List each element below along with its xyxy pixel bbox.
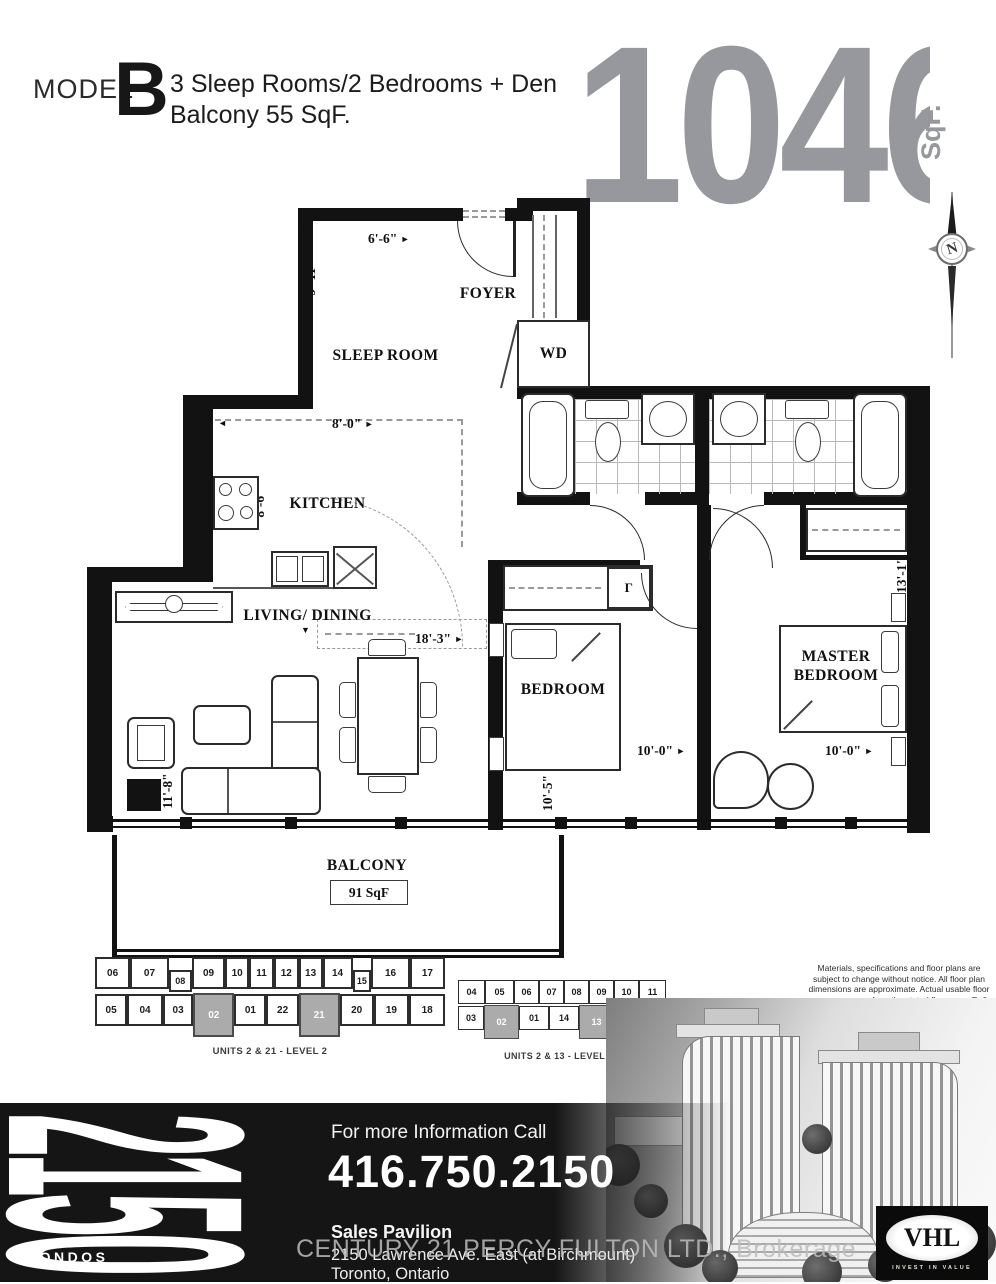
balcony-area-box: 91 SqF [330,880,408,905]
keyplan-unit-06: 06 [514,980,539,1004]
keyplan-row: 060708091011121314151617 [95,957,445,992]
keyplan-unit-02: 02 [193,993,234,1037]
phone-number: 416.750.2150 [328,1146,615,1198]
keyplan-unit-09: 09 [192,957,225,989]
keyplan-unit-05: 05 [95,994,127,1026]
tree [802,1124,832,1154]
window-mullion [845,817,857,829]
floor-plan: BALCONY 91 SqF WD SLEEP ROOM 6'-6" ► 9'-… [85,195,930,970]
keyplan-unit-02: 02 [484,1005,519,1039]
toilet-tank [785,400,829,419]
armchair-seat [137,725,165,761]
keyplan-unit-17: 17 [410,957,445,989]
arrow-right-icon: ► [454,634,463,644]
bathroom-sink [720,401,758,437]
vhl-tagline: INVEST IN VALUE [892,1265,972,1271]
wall [907,386,930,833]
keyplan-unit-07: 07 [130,957,169,989]
balcony-area-value: 91 SqF [349,885,389,901]
keyplan-unit-19: 19 [374,994,410,1026]
sofa [181,767,321,815]
area-number-watermark: 1046 [574,40,930,208]
model-letter: B [114,46,169,133]
keyplan-unit-03: 03 [458,1006,484,1030]
keyplan-unit-14: 14 [549,1006,579,1030]
window-mullion [775,817,787,829]
dim-kitchen-width: 8'-0" ► [332,416,374,432]
window-mullion [180,817,192,829]
closet-door-angled [500,324,518,389]
tv-knob [165,595,183,613]
keyplan-unit-08: 08 [564,980,589,1004]
wall [695,386,709,504]
keyplan-unit-16: 16 [371,957,410,989]
dining-chair [420,727,437,763]
dining-table [357,657,419,775]
arrow-left-icon: ◄ [218,418,227,428]
keyplan-unit-13: 13 [299,957,323,989]
model-description-line2: Balcony 55 SqF. [170,101,351,130]
window-mullion [488,813,503,830]
keyplan-unit-22: 22 [266,994,298,1026]
room-label-sleep-room: SLEEP ROOM [313,347,458,365]
stove-burner [219,483,232,496]
compass-south-blade [948,266,956,326]
dining-chair [368,776,406,793]
bathroom-door-arc [590,505,645,560]
window-mullion [395,817,407,829]
address-line2: Toronto, Ontario [331,1265,449,1284]
window-band [112,819,907,822]
keyplan-unit-08: 08 [169,970,192,992]
sink-basin [276,556,298,582]
room-label-living-dining: LIVING/ DINING [225,607,390,625]
opening-dashed [463,216,505,218]
toilet-bowl [795,422,821,462]
balcony-railing [112,949,564,952]
room-label-bedroom: BEDROOM [503,681,623,699]
keyplan-unit-01: 01 [519,1006,549,1030]
closet-rod-dashed [812,529,900,531]
sofa-cushion-line [273,721,317,723]
vhl-letters: VHL [904,1223,960,1253]
keyplan-caption: UNITS 2 & 21 - LEVEL 2 [95,1046,445,1057]
keyplan-unit-04: 04 [127,994,163,1026]
keyplan-unit-10: 10 [225,957,249,989]
wall [800,555,907,560]
brokerage-watermark: CENTURY 21 PERCY FULTON LTD., Brokerage [296,1235,856,1264]
dim-master-height: 13'-1" [894,548,910,602]
wall [87,816,113,832]
stove-burner [239,483,252,496]
toilet-bowl [595,422,621,462]
area-unit-label: SqF. [916,102,956,182]
balcony-wall [112,835,117,955]
opening-dashed [463,210,505,212]
nightstand [489,623,504,657]
wall [183,395,213,575]
keyplan-unit-18: 18 [409,994,445,1026]
room-label-foyer: FOYER [445,285,531,303]
bathtub-inner [529,401,567,489]
coffee-table [193,705,251,745]
bathtub-inner [861,401,899,489]
keyplan-level-2: 0607080910111213141516170504030201222120… [95,957,445,1057]
laundry-closet: WD [517,320,590,388]
logo-condos-label: CONDOS [26,1249,108,1265]
balcony-wall [559,835,564,955]
compass-north-letter: N [944,239,960,259]
window-mullion [625,817,637,829]
keyplan-unit-01: 01 [234,994,266,1026]
vhl-oval: VHL [886,1215,978,1261]
window-mullion [285,817,297,829]
stove-burner [240,506,253,519]
room-label-kitchen: KITCHEN [280,495,375,513]
vhl-logo: VHL INVEST IN VALUE [876,1206,988,1280]
closet-door-line [555,215,557,318]
keyplan-unit-03: 03 [163,994,193,1026]
counter-edge [213,587,333,589]
dim-bedroom-height: 10'-5" [540,768,556,818]
bathroom-sink [649,401,687,437]
wall [488,560,503,823]
arrow-up-icon: ▲ [301,221,310,231]
sink-basin [302,556,324,582]
wall [298,208,463,221]
keyplan-unit-06: 06 [95,957,130,989]
entry-door-arc [457,221,513,277]
arrow-right-icon: ► [864,746,873,756]
keyplan-unit-20: 20 [340,994,374,1026]
dining-chair [339,682,356,718]
info-call-label: For more Information Call [331,1122,546,1144]
nightstand [891,737,906,766]
bed-pillow [511,629,557,659]
dim-bedroom-width: 10'-0" ► [637,743,685,759]
keyplan-unit-21: 21 [299,993,340,1037]
keyplan-unit-15: 15 [353,970,372,992]
keyplan-unit-12: 12 [274,957,299,989]
arrow-down-icon: ▼ [301,625,310,635]
closet-rod-dashed [509,587,601,589]
window-mullion [555,817,567,829]
nightstand [489,737,504,771]
dim-sleep-height: 9'-11" [303,248,319,308]
toilet-tank [585,400,629,419]
dim-master-width: 10'-0" ► [825,743,873,759]
room-label-wd: WD [540,345,568,363]
arrow-right-icon: ► [365,419,374,429]
window-band [112,826,907,828]
dim-sleep-width: 6'-6" ► [368,231,410,247]
room-label-balcony: BALCONY [297,857,437,875]
closet-door-line [532,215,534,318]
dim-living-height: 11'-8" [160,766,176,816]
keyplan-unit-05: 05 [485,980,514,1004]
keyplan-row: 05040302012221201918 [95,994,445,1037]
fireplace-block [127,779,161,811]
linen-closet-mark: Γ [625,580,634,596]
dim-living-width: 18'-3" ► [415,631,463,647]
master-door-arc [713,508,773,568]
bed-pillow [881,685,899,727]
sofa-cushion-line [227,769,229,813]
stove-burner [218,505,234,521]
north-compass-icon: N [926,192,978,360]
wall [87,567,112,823]
lounge-chair [713,751,769,809]
dining-chair [368,639,406,656]
sleep-room-dashed-line [325,633,415,635]
dishwasher [333,546,377,589]
window-mullion [697,813,711,830]
dining-chair [339,727,356,763]
arrow-right-icon: ► [676,746,685,756]
keyplan-unit-04: 04 [458,980,485,1004]
closet-rod-dashed [543,215,545,318]
compass-ring: N [936,233,968,265]
wall [298,208,313,409]
keyplan-unit-07: 07 [539,980,564,1004]
dining-chair [420,682,437,718]
bedroom-door-arc [641,573,697,629]
keyplan-unit-11: 11 [249,957,274,989]
keyplan-unit-14: 14 [323,957,353,989]
entry-door-leaf [513,221,516,277]
model-description-line1: 3 Sleep Rooms/2 Bedrooms + Den [170,70,557,99]
room-label-master-bedroom: MASTER BEDROOM [765,647,907,686]
arrow-right-icon: ► [401,234,410,244]
round-table [767,763,814,810]
kitchen-upper-cabinet-dashed [461,419,463,547]
